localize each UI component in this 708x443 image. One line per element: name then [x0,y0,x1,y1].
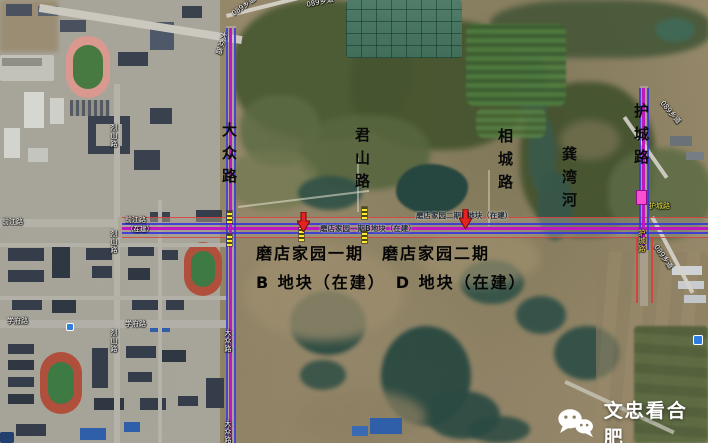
map-terrain-patch [70,100,110,116]
road-label-hucheng-small: 护城路 [649,203,670,210]
road-line-red [122,237,708,238]
road-line-blue [234,28,236,443]
pond [300,360,346,390]
map-building [126,346,156,358]
road-annotation-dazhong: 大众路 [221,122,236,191]
crossing-marker [362,231,367,243]
map-building-blue [370,418,402,434]
map-building [8,248,44,261]
map-road [0,296,228,300]
red-arrow-down-west [297,212,310,232]
pond [655,18,695,42]
map-building [8,360,34,370]
map-building [128,268,150,280]
watermark: 文忠看合肥 [556,396,708,443]
road-label-lieshan-south: 烈山路 [110,329,117,353]
satellite-map: 前江路 前江路 （在建） 学府路 学府路 烈山路 烈山路 烈山路 大众路 大众路… [0,0,708,443]
map-building [8,394,34,404]
map-building [28,148,48,162]
map-building [134,150,160,170]
map-building-blue [352,426,368,436]
map-building-blue [124,422,140,432]
map-building [684,295,706,303]
map-building [60,20,86,32]
map-building [8,344,34,354]
pond [0,432,14,443]
map-building [52,246,70,278]
map-building [16,424,46,436]
map-building [8,377,34,387]
map-building [86,248,112,260]
pond [396,164,468,214]
map-building [206,378,224,408]
pond [516,296,566,334]
road-label-lieshan-north: 烈山路 [110,124,117,148]
map-building [92,348,108,388]
river-annotation-gongwan: 龚湾河 [561,146,576,215]
map-building [686,152,704,160]
road-annotation-xiangcheng: 相城路 [497,128,512,197]
map-building [92,266,112,278]
road-label-qianjiang-center: 前江路 [125,217,146,224]
road-label-dazhong-small-south: 大众路 [224,420,231,443]
crop-field [466,24,566,106]
poi-marker-blue-east [693,335,703,345]
road-label-dazhong-small-mid: 大众路 [224,329,231,353]
poi-marker-blue-west [66,323,74,331]
road-label-xuefu-west: 学府路 [7,318,28,325]
watermark-text: 文忠看合肥 [604,396,708,443]
map-building [166,300,184,310]
map-building [50,98,64,124]
crossing-marker [227,211,232,223]
stadium-field [48,362,74,404]
road-label-lieshan-mid: 烈山路 [110,230,117,254]
map-building [24,92,44,128]
poi-marker-pink [636,190,647,205]
map-building [162,350,186,362]
map-building [150,108,172,124]
map-building [178,396,198,406]
map-building [182,6,202,18]
road-annotation-hucheng: 护城路 [633,103,648,172]
map-building [128,372,152,382]
road-line-red [122,217,708,218]
estate-annotation-line1: 磨店家园一期 磨店家园二期 [256,246,490,262]
map-building [52,300,76,313]
pond [468,416,530,443]
wechat-icon [556,408,596,438]
map-building [8,270,44,282]
road-label-under-construction: （在建） [127,226,153,233]
road-label-xuefu-center: 学府路 [125,321,146,328]
stadium-field [191,251,215,287]
red-arrow-down-east [459,209,472,229]
map-building [2,58,42,66]
map-building [6,4,32,16]
map-building [670,136,692,146]
road-annotation-junshan: 君山路 [354,127,369,196]
fish-ponds [346,0,462,58]
map-building-blue [80,428,106,440]
stadium-field [73,45,103,89]
estate-annotation-line2: B 地块（在建） D 地块（在建） [256,275,527,291]
map-building [4,128,20,158]
crossing-marker [362,207,367,219]
map-imagery-layer [0,0,708,443]
plot-label-b: 磨店家园一期B地块（在建） [320,225,416,233]
map-building [118,52,148,66]
road-label-hucheng-small-vertical: 护城路 [638,229,645,253]
crossing-marker [227,234,232,246]
road-label-qianjiang-west: 前江路 [2,219,23,226]
map-building [140,398,166,410]
